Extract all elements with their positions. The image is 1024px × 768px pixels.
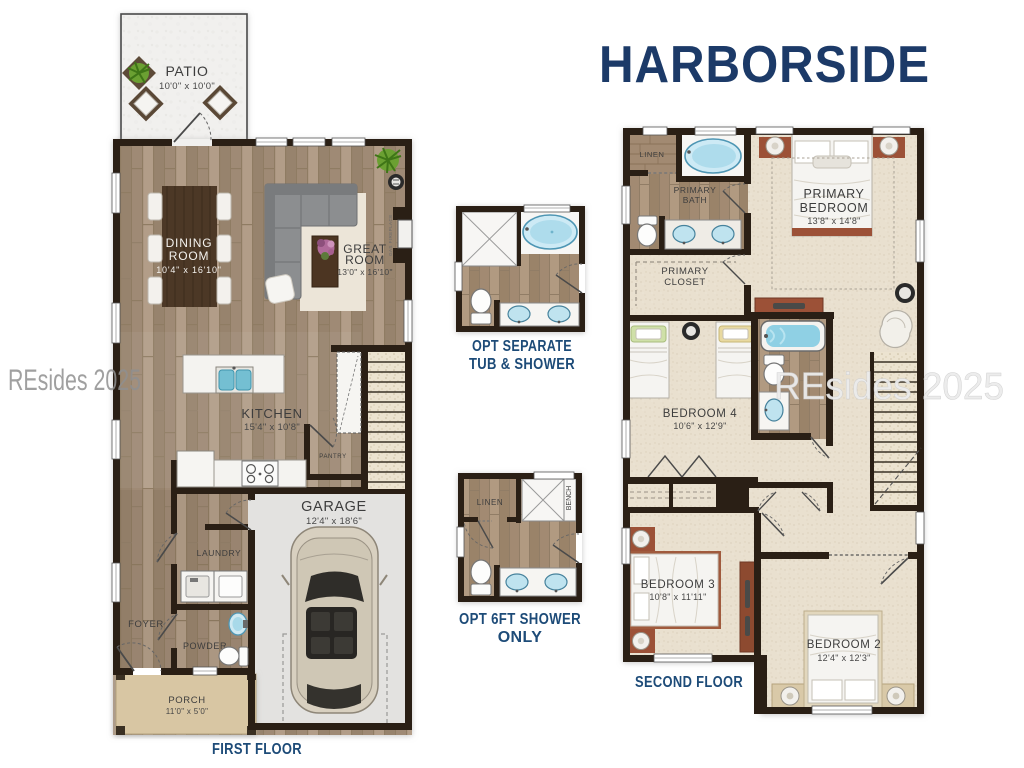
svg-text:OPT SEPARATE: OPT SEPARATE	[472, 338, 572, 355]
svg-text:BEDROOM: BEDROOM	[800, 201, 869, 215]
svg-text:BENCH: BENCH	[566, 486, 573, 511]
svg-text:LAUNDRY: LAUNDRY	[197, 548, 242, 558]
svg-text:REsides 2025: REsides 2025	[774, 366, 1004, 408]
svg-text:TUB & SHOWER: TUB & SHOWER	[469, 356, 575, 373]
svg-text:PRIMARY: PRIMARY	[804, 187, 865, 201]
svg-text:KITCHEN: KITCHEN	[241, 406, 302, 421]
svg-text:FIRST FLOOR: FIRST FLOOR	[212, 741, 302, 758]
svg-text:DINING: DINING	[166, 236, 213, 250]
svg-text:15'4" x 10'8": 15'4" x 10'8"	[244, 422, 300, 433]
svg-text:SECOND FLOOR: SECOND FLOOR	[635, 674, 743, 691]
svg-text:BEDROOM 3: BEDROOM 3	[641, 579, 715, 591]
svg-text:PANTRY: PANTRY	[319, 454, 346, 460]
svg-text:PRIMARY: PRIMARY	[661, 266, 708, 277]
svg-text:PATIO: PATIO	[166, 63, 209, 79]
svg-text:10'8" x 11'11": 10'8" x 11'11"	[649, 592, 706, 602]
svg-text:LINEN: LINEN	[477, 498, 504, 507]
svg-text:13'0" x 16'10": 13'0" x 16'10"	[337, 267, 393, 277]
svg-text:POWDER: POWDER	[183, 641, 227, 651]
svg-text:BEDROOM 2: BEDROOM 2	[807, 639, 881, 651]
svg-text:PRIMARY: PRIMARY	[674, 185, 717, 195]
svg-text:12'4" x 18'6": 12'4" x 18'6"	[306, 516, 362, 527]
svg-text:FOYER: FOYER	[128, 619, 164, 630]
svg-text:ROOM: ROOM	[345, 253, 385, 267]
svg-text:12'4" x 12'3": 12'4" x 12'3"	[817, 653, 870, 663]
svg-text:HARBORSIDE: HARBORSIDE	[599, 36, 930, 94]
svg-text:GARAGE: GARAGE	[301, 499, 367, 515]
svg-text:REsides 2025: REsides 2025	[8, 364, 141, 397]
svg-text:13'8" x 14'8": 13'8" x 14'8"	[807, 216, 860, 226]
svg-text:BEDROOM 4: BEDROOM 4	[663, 408, 737, 420]
svg-text:ROOM: ROOM	[169, 249, 210, 263]
svg-text:10'0" x 10'0": 10'0" x 10'0"	[159, 81, 215, 92]
svg-text:10'6" x 12'9": 10'6" x 12'9"	[673, 421, 726, 431]
svg-text:CLOSET: CLOSET	[664, 277, 706, 288]
svg-text:PORCH: PORCH	[168, 695, 205, 706]
svg-text:ONLY: ONLY	[498, 629, 543, 646]
svg-text:10'4" x 16'10": 10'4" x 16'10"	[156, 265, 222, 275]
svg-text:LINEN: LINEN	[639, 150, 664, 159]
svg-text:GAS FIREPLACE: GAS FIREPLACE	[388, 214, 393, 256]
svg-text:OPT 6FT SHOWER: OPT 6FT SHOWER	[459, 611, 581, 628]
svg-text:11'0" x 5'0": 11'0" x 5'0"	[166, 707, 208, 716]
svg-text:BATH: BATH	[683, 195, 707, 205]
